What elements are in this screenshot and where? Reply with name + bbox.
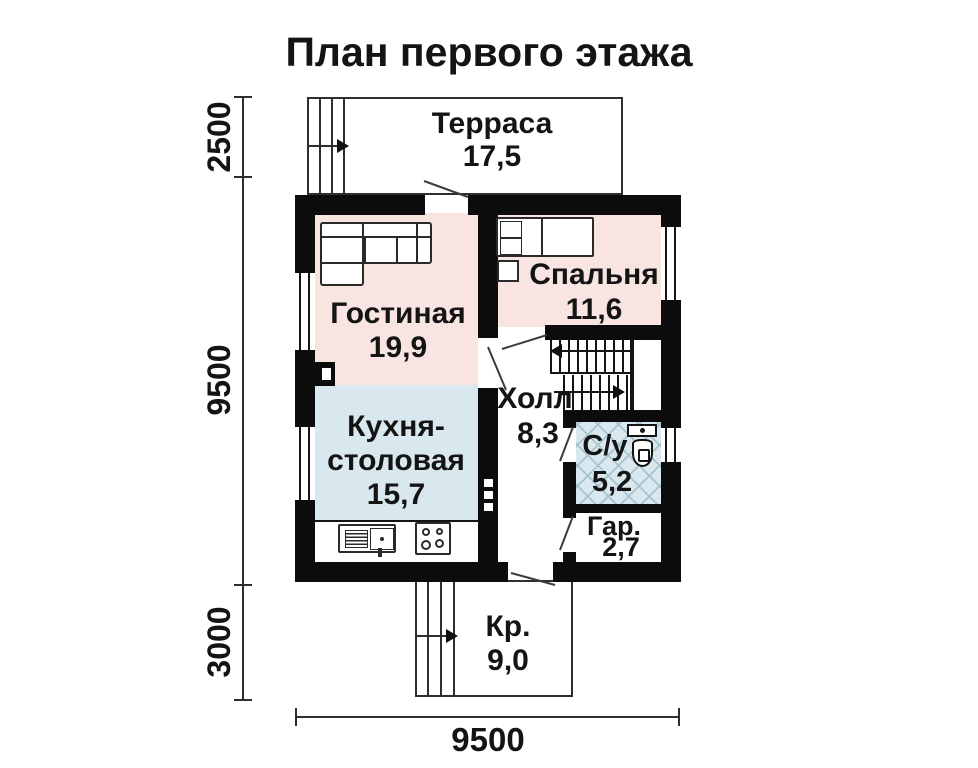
terrace-entry-arrowhead [337,139,349,153]
living-room-label: Гостиная [308,299,488,329]
sofa-back-line [322,236,430,238]
wall-bedroom-bottom [545,325,661,340]
dimension-line-horizontal [296,716,680,718]
bedroom-area: 11,6 [504,295,684,325]
bed-pillow [500,221,522,238]
terrace-room-area: 17,5 [392,142,592,172]
bed [496,217,594,257]
sofa-armrest-line [416,224,418,262]
dimension-label-terrace-depth: 2500 [202,77,236,197]
wall-top-right-segment [468,195,681,215]
floor-plan: План первого этажа 2500 9500 3000 9500 Т… [0,0,978,768]
wardrobe-area: 2,7 [541,534,701,561]
dimension-tick [234,699,252,701]
bathroom-label: С/у [525,432,685,461]
porch-area: 9,0 [428,646,588,676]
staircase-upper-flight [550,340,632,373]
bathroom-area: 5,2 [532,468,692,497]
dimension-label-house-depth: 9500 [202,320,236,440]
wall-left [295,195,315,582]
faucet-icon [378,548,382,557]
living-room-area: 19,9 [308,333,488,363]
sofa-chaise-divider [322,262,362,264]
wall-bottom-left-segment [295,562,508,582]
dimension-tick [234,176,252,178]
stove-icon [415,522,451,555]
stair-arrowhead-upper [550,344,562,358]
sofa-chaise [320,222,364,286]
stair-arrow-upper [560,350,630,352]
sofa-cushion-divider [364,238,366,262]
bed-pillow [500,238,522,255]
staircase-stringer [630,340,634,410]
kitchen-area: 15,7 [306,480,486,510]
dimension-tick [234,96,252,98]
page-title: План первого этажа [0,32,978,73]
dimension-tick [234,584,252,586]
wall-bottom-right-segment [553,562,681,582]
bed-blanket-line [541,219,543,255]
terrace-entry-arrow [308,145,338,147]
dimension-label-porch-depth: 3000 [202,582,236,702]
porch-label: Кр. [428,612,588,642]
sink-basin-icon [370,528,394,550]
dimension-line-vertical [242,97,244,700]
sofa-cushion-divider [396,238,398,262]
kitchen-label-line2: столовая [306,446,486,476]
dimension-tick [295,708,297,726]
dish-rack-icon [345,530,368,548]
staircase-landing-line [550,372,634,374]
wall-top-left-segment [295,195,425,215]
fireplace-opening [322,368,331,380]
sink-icon [338,524,396,553]
dimension-tick [678,708,680,726]
fireplace-block [313,362,335,386]
hall-label: Холл [455,384,615,414]
bedroom-label: Спальня [504,260,684,290]
dimension-label-house-width: 9500 [408,723,568,756]
terrace-room-label: Терраса [392,109,592,139]
